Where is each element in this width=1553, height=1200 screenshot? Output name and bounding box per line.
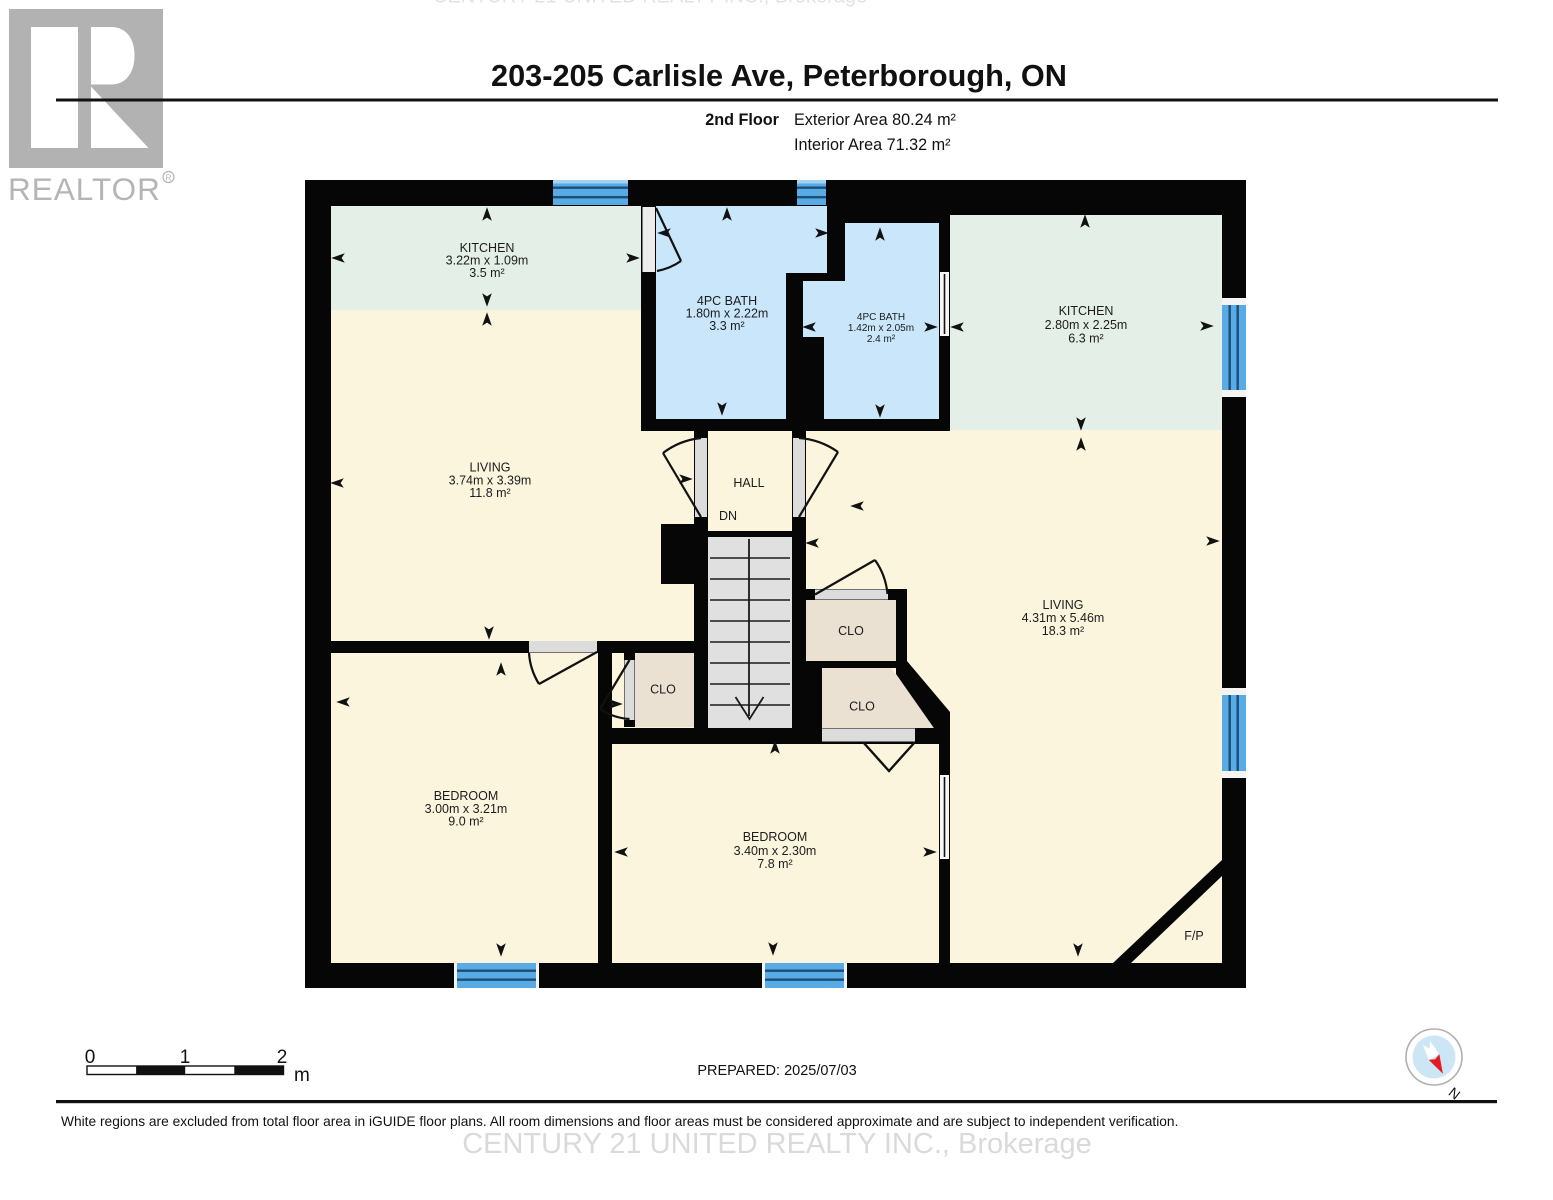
svg-text:2nd Floor: 2nd Floor xyxy=(705,111,779,129)
svg-text:LIVING: LIVING xyxy=(1043,598,1084,612)
svg-text:3.5 m²: 3.5 m² xyxy=(469,266,504,280)
svg-text:HALL: HALL xyxy=(733,476,764,490)
svg-text:BEDROOM: BEDROOM xyxy=(434,789,499,803)
svg-text:9.0 m²: 9.0 m² xyxy=(448,815,483,829)
svg-text:CLO: CLO xyxy=(650,683,676,697)
svg-text:3.3 m²: 3.3 m² xyxy=(709,319,744,333)
svg-text:CLO: CLO xyxy=(849,700,875,714)
svg-text:White regions are excluded fro: White regions are excluded from total fl… xyxy=(61,1114,1178,1129)
svg-text:203-205 Carlisle Ave, Peterbor: 203-205 Carlisle Ave, Peterborough, ON xyxy=(491,58,1067,93)
svg-text:3.40m x 2.30m: 3.40m x 2.30m xyxy=(734,844,817,858)
svg-text:CENTURY 21 UNITED REALTY INC.,: CENTURY 21 UNITED REALTY INC., Brokerage xyxy=(462,1128,1092,1160)
svg-text:LIVING: LIVING xyxy=(470,461,511,475)
svg-text:CENTURY 21 UNITED REALTY INC.,: CENTURY 21 UNITED REALTY INC., Brokerage xyxy=(433,0,867,8)
svg-text:DN: DN xyxy=(719,509,737,523)
svg-text:7.8 m²: 7.8 m² xyxy=(757,857,792,871)
svg-text:Exterior Area 80.24 m²: Exterior Area 80.24 m² xyxy=(794,111,957,129)
svg-text:2.80m x 2.25m: 2.80m x 2.25m xyxy=(1045,318,1128,332)
svg-text:m: m xyxy=(294,1065,310,1086)
svg-text:REALTOR: REALTOR xyxy=(8,171,161,207)
svg-text:PREPARED: 2025/07/03: PREPARED: 2025/07/03 xyxy=(697,1063,856,1079)
svg-text:18.3 m²: 18.3 m² xyxy=(1042,624,1084,638)
svg-text:1.42m x 2.05m: 1.42m x 2.05m xyxy=(848,323,914,334)
svg-text:4.31m x 5.46m: 4.31m x 5.46m xyxy=(1022,611,1105,625)
svg-text:6.3 m²: 6.3 m² xyxy=(1068,332,1103,346)
svg-text:Interior Area 71.32 m²: Interior Area 71.32 m² xyxy=(794,136,951,154)
svg-text:2: 2 xyxy=(277,1047,288,1068)
svg-text:KITCHEN: KITCHEN xyxy=(1059,304,1114,318)
svg-text:BEDROOM: BEDROOM xyxy=(743,830,808,844)
svg-text:CLO: CLO xyxy=(838,624,864,638)
svg-text:1: 1 xyxy=(180,1047,191,1068)
svg-text:11.8 m²: 11.8 m² xyxy=(469,486,510,500)
svg-text:F/P: F/P xyxy=(1184,929,1203,943)
svg-text:4PC BATH: 4PC BATH xyxy=(857,312,905,323)
svg-text:2.4 m²: 2.4 m² xyxy=(867,334,896,345)
svg-text:0: 0 xyxy=(85,1047,96,1068)
svg-text:R: R xyxy=(166,174,172,183)
